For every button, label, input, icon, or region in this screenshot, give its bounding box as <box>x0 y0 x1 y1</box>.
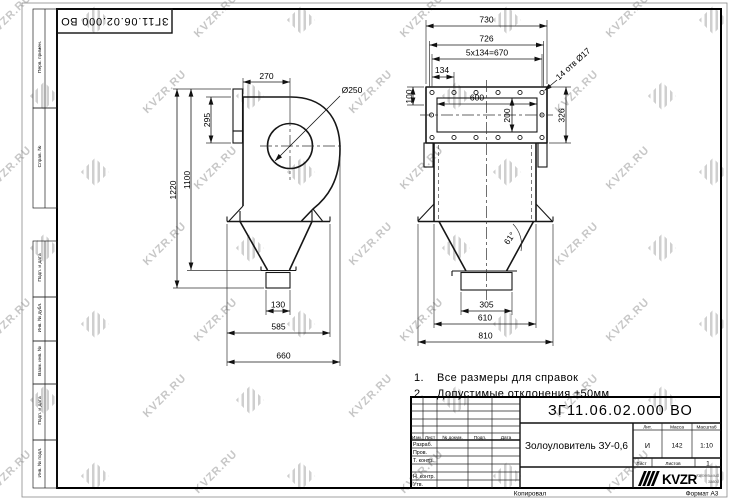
dim-295: 295 <box>202 113 212 127</box>
note-2-number: 2. <box>414 388 424 400</box>
tb-col-izm: Изм. <box>412 435 422 440</box>
margin-label-sprav-n: Справ. № <box>37 146 43 168</box>
margin-label-inv-dubl: Инв. № дубл. <box>37 303 43 333</box>
tb-sheets-value: 1 <box>706 461 710 468</box>
tb-mass-label: Масса <box>670 425 684 430</box>
notes: 1. Все размеры для справок 2. Допустимые… <box>414 372 609 400</box>
dim-130: 130 <box>271 300 285 310</box>
format-label: Формат А3 <box>686 491 719 498</box>
margin-label-inv-podl: Инв. № подл. <box>37 448 43 478</box>
dim-200: 200 <box>502 108 512 122</box>
note-1-text: Все размеры для справок <box>437 372 578 384</box>
corner-stamp: ЗГ11.06.02.000 ВО <box>57 9 172 33</box>
dim-1220: 1220 <box>168 180 178 199</box>
title-block: Изм. Лист № докум. Подп. Дата Разраб. Пр… <box>411 397 721 488</box>
left-view: 270 Ø250 295 1100 1220 130 585 66 <box>168 71 363 366</box>
tb-row-razrab: Разраб. <box>413 442 432 448</box>
dim-270: 270 <box>259 71 273 81</box>
tb-sheet-label: Лист <box>636 461 647 466</box>
tb-part-name: Золоуловитель ЗУ-0,6 <box>525 441 628 452</box>
tb-doc-number: ЗГ11.06.02.000 ВО <box>548 403 693 419</box>
dim-100: 100 <box>404 89 414 103</box>
dim-angle-61: 61° <box>502 230 518 246</box>
margin-label-perv-primen: Перв. примен. <box>37 41 43 73</box>
tb-scale-value: 1:10 <box>700 443 713 450</box>
tb-col-data: Дата <box>501 435 512 440</box>
kvzr-logo-text: KVZR <box>662 472 698 487</box>
dim-585: 585 <box>271 322 285 332</box>
margin-column: Перв. примен. Справ. № Подп. и дата Инв.… <box>33 9 57 488</box>
kvzr-logo-icon <box>638 471 660 486</box>
tb-row-tkontr: Т. контр. <box>413 458 434 464</box>
dim-730: 730 <box>479 15 493 25</box>
corner-stamp-doc-number: ЗГ11.06.02.000 ВО <box>60 15 168 27</box>
tb-mass-value: 142 <box>671 443 682 450</box>
dim-660: 660 <box>276 351 290 361</box>
dim-305: 305 <box>479 300 493 310</box>
kvzr-logo-subtext-2: завод <box>707 479 720 484</box>
tb-col-list: Лист <box>425 435 436 440</box>
kvzr-logo-subtext-1: Котельный <box>696 473 719 478</box>
dim-600: 600 <box>470 93 484 103</box>
note-2-text: Допустимые отклонения ±50мм <box>437 388 609 400</box>
tb-row-utv: Утв. <box>413 482 423 488</box>
drawing-sheet: KVZR.RUKVZR.RUKVZR.RUKVZR.RUKVZR.RUKVZR.… <box>0 0 750 500</box>
tb-col-dokum: № докум. <box>442 435 463 440</box>
dim-dia250: Ø250 <box>342 85 363 95</box>
tb-sheets-label: Листов <box>665 461 681 466</box>
margin-label-podp-data-2: Подп. и дата <box>37 396 43 425</box>
tb-scale-label: Масштаб <box>696 425 716 430</box>
drawing-canvas: Перв. примен. Справ. № Подп. и дата Инв.… <box>0 0 750 500</box>
dim-326: 326 <box>557 108 567 122</box>
tb-lit-label: Лит. <box>643 425 652 430</box>
dim-670: 5x134=670 <box>466 48 509 58</box>
right-view: 730 726 5x134=670 134 14 отв Ø17 100 600… <box>404 15 593 347</box>
dim-610: 610 <box>478 313 492 323</box>
tb-row-nkontr: Н. контр. <box>413 474 435 480</box>
tb-col-podp: Подп. <box>474 435 486 440</box>
dim-810: 810 <box>478 331 492 341</box>
dim-726: 726 <box>479 34 493 44</box>
copied-label: Копировал <box>514 491 547 498</box>
note-1-number: 1. <box>414 372 424 384</box>
tb-row-prov: Пров. <box>413 450 427 456</box>
dim-134: 134 <box>435 65 449 75</box>
margin-label-podp-data-1: Подп. и дата <box>37 253 43 282</box>
tb-lit-value: И <box>645 441 650 450</box>
dim-1100: 1100 <box>182 171 192 190</box>
margin-label-vzam-inv: Взам. инв. № <box>37 346 43 376</box>
dim-holes-note: 14 отв Ø17 <box>554 45 593 82</box>
